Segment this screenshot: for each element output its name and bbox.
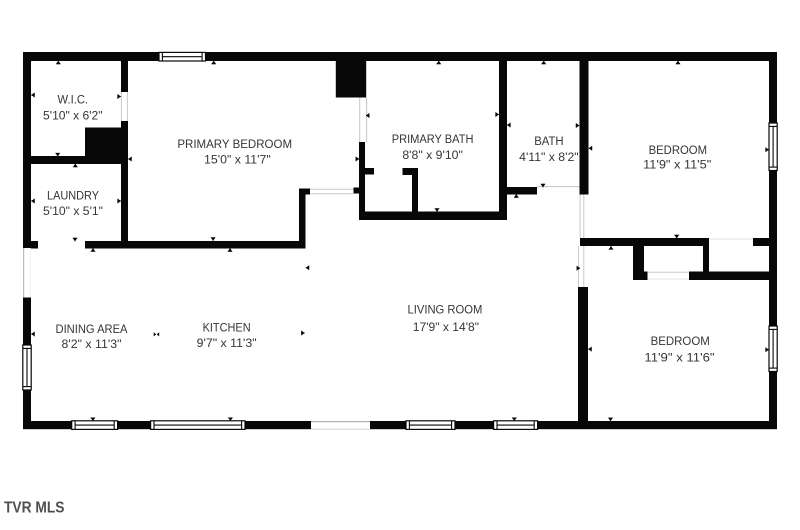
svg-text:LIVING ROOM: LIVING ROOM bbox=[408, 302, 483, 316]
svg-text:BEDROOM: BEDROOM bbox=[651, 334, 710, 348]
svg-text:DINING AREA: DINING AREA bbox=[56, 322, 129, 336]
svg-text:11'9" x 11'6": 11'9" x 11'6" bbox=[644, 351, 714, 365]
svg-text:KITCHEN: KITCHEN bbox=[203, 321, 251, 335]
svg-text:9'7" x 11'3": 9'7" x 11'3" bbox=[197, 336, 257, 350]
svg-text:4'11" x 8'2": 4'11" x 8'2" bbox=[519, 150, 579, 164]
svg-text:PRIMARY BEDROOM: PRIMARY BEDROOM bbox=[177, 137, 292, 151]
svg-text:15'0" x 11'7": 15'0" x 11'7" bbox=[204, 152, 271, 166]
svg-text:BEDROOM: BEDROOM bbox=[649, 143, 707, 157]
svg-text:8'8" x 9'10": 8'8" x 9'10" bbox=[402, 148, 463, 162]
svg-text:W.I.C.: W.I.C. bbox=[58, 93, 89, 107]
svg-text:5'10" x 6'2": 5'10" x 6'2" bbox=[43, 109, 103, 123]
svg-text:17'9" x 14'8": 17'9" x 14'8" bbox=[413, 320, 479, 334]
svg-text:TVR MLS: TVR MLS bbox=[4, 499, 65, 516]
svg-text:11'9" x 11'5": 11'9" x 11'5" bbox=[643, 158, 711, 172]
svg-text:LAUNDRY: LAUNDRY bbox=[47, 189, 99, 203]
svg-text:5'10" x 5'1": 5'10" x 5'1" bbox=[43, 204, 103, 218]
svg-text:PRIMARY BATH: PRIMARY BATH bbox=[392, 132, 474, 146]
svg-text:BATH: BATH bbox=[534, 134, 563, 148]
svg-text:8'2" x 11'3": 8'2" x 11'3" bbox=[62, 337, 122, 351]
